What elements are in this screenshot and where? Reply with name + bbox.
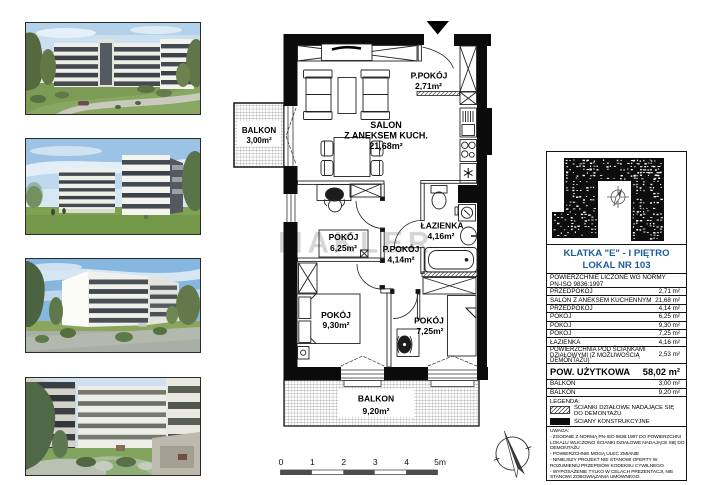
svg-text:ŁAZIENKA: ŁAZIENKA	[421, 221, 464, 231]
svg-text:4: 4	[404, 457, 409, 467]
svg-text:BALKON: BALKON	[242, 126, 276, 135]
svg-text:9,30m²: 9,30m²	[323, 320, 350, 330]
svg-text:7,25m²: 7,25m²	[417, 326, 444, 336]
svg-text:3: 3	[373, 457, 378, 467]
svg-text:21,68m²: 21,68m²	[369, 141, 403, 151]
svg-text:POKÓJ: POKÓJ	[329, 231, 359, 242]
svg-text:POKÓJ: POKÓJ	[414, 315, 444, 326]
svg-text:BALKON: BALKON	[358, 394, 394, 404]
svg-text:3,00m²: 3,00m²	[246, 136, 272, 145]
svg-text:P.POKÓJ: P.POKÓJ	[383, 243, 420, 254]
svg-text:Z ANEKSEM KUCH.: Z ANEKSEM KUCH.	[344, 131, 428, 141]
svg-text:SALON: SALON	[370, 120, 402, 130]
svg-text:5m: 5m	[434, 457, 446, 467]
svg-text:2: 2	[341, 457, 346, 467]
svg-text:P.POKÓJ: P.POKÓJ	[411, 70, 448, 81]
svg-text:2,71m²: 2,71m²	[415, 81, 442, 91]
svg-text:6,25m²: 6,25m²	[330, 243, 357, 253]
svg-text:4,16m²: 4,16m²	[428, 231, 455, 241]
svg-text:4,14m²: 4,14m²	[388, 255, 415, 265]
svg-text:1: 1	[310, 457, 315, 467]
svg-text:9,20m²: 9,20m²	[363, 406, 390, 416]
svg-text:0: 0	[279, 457, 284, 467]
svg-text:POKÓJ: POKÓJ	[321, 309, 351, 320]
